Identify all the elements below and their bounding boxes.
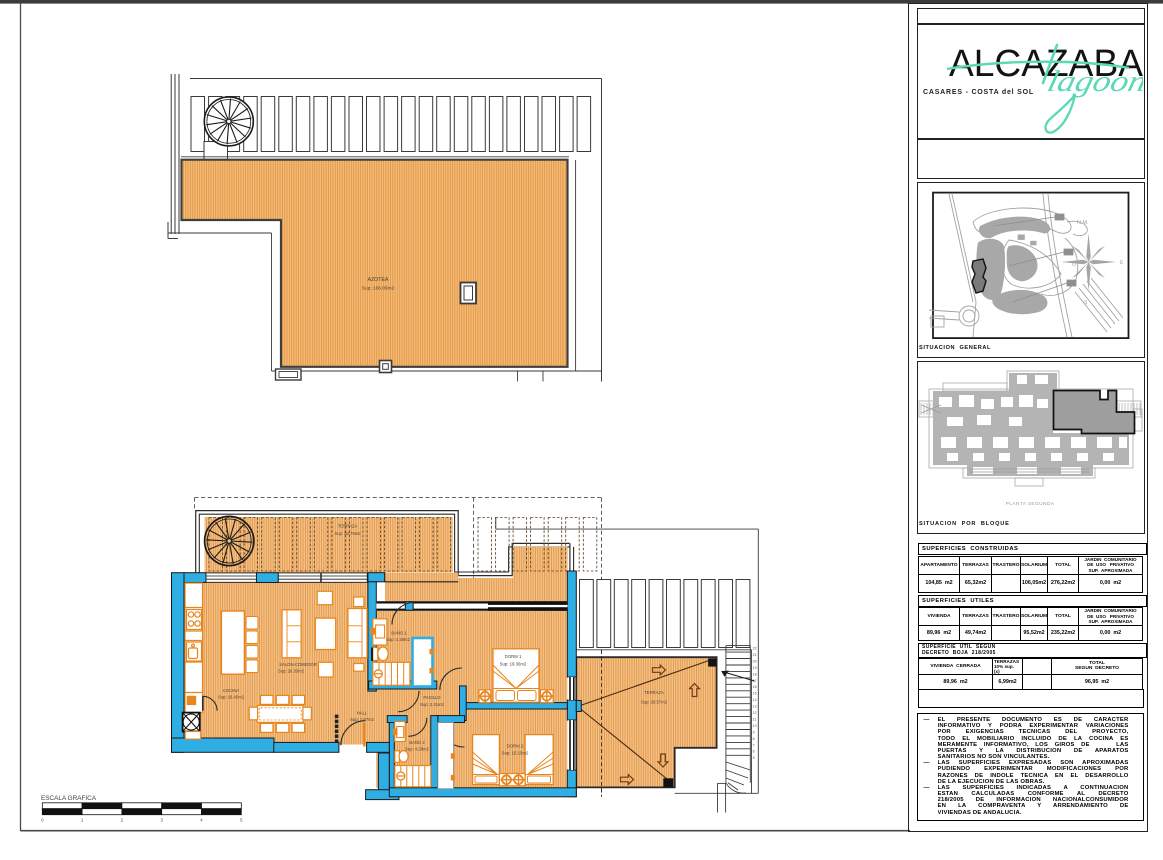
- svg-text:11: 11: [753, 718, 757, 722]
- svg-text:lagoon: lagoon: [1044, 64, 1143, 97]
- svg-text:BAÑO 2: BAÑO 2: [409, 740, 425, 745]
- svg-text:DORM 1: DORM 1: [505, 654, 522, 659]
- svg-text:2: 2: [121, 818, 124, 823]
- svg-text:PASILLO: PASILLO: [423, 695, 441, 700]
- svg-text:Sup: 26.33m2: Sup: 26.33m2: [278, 669, 305, 674]
- svg-text:Sup: 33.79m2: Sup: 33.79m2: [334, 531, 361, 536]
- svg-text:Sup: 19.36m2: Sup: 19.36m2: [500, 662, 527, 667]
- svg-text:0: 0: [41, 818, 44, 823]
- svg-text:5: 5: [753, 756, 755, 760]
- svg-text:5: 5: [240, 818, 243, 823]
- svg-text:TERRAZA: TERRAZA: [644, 690, 664, 695]
- svg-text:PLANTA SEGUNDA: PLANTA SEGUNDA: [1005, 501, 1054, 507]
- svg-text:N.M.: N.M.: [1077, 220, 1089, 226]
- svg-text:Sup: 16.42m2: Sup: 16.42m2: [218, 695, 245, 700]
- svg-text:BAÑO 1: BAÑO 1: [391, 631, 407, 636]
- svg-text:Sup: 2.31m2: Sup: 2.31m2: [420, 702, 444, 707]
- svg-text:4: 4: [200, 818, 203, 823]
- svg-text:16: 16: [753, 685, 757, 689]
- svg-text:6: 6: [753, 750, 755, 754]
- svg-text:22: 22: [753, 647, 757, 651]
- svg-text:SALON-COMEDOR: SALON-COMEDOR: [279, 662, 316, 667]
- svg-text:20: 20: [753, 659, 757, 663]
- svg-text:15: 15: [753, 692, 757, 696]
- svg-text:10: 10: [753, 724, 757, 728]
- svg-text:13: 13: [753, 705, 757, 709]
- svg-text:9: 9: [753, 730, 755, 734]
- svg-text:ESCALA GRAFICA: ESCALA GRAFICA: [41, 795, 97, 802]
- svg-text:DORM 2: DORM 2: [507, 744, 524, 749]
- svg-text:Sup: 4.28m2: Sup: 4.28m2: [386, 637, 410, 642]
- svg-text:17: 17: [753, 679, 757, 683]
- svg-text:8: 8: [753, 737, 755, 741]
- svg-text:CASARES - COSTA del SOL: CASARES - COSTA del SOL: [923, 89, 1034, 96]
- svg-text:Sup: 15.15m2: Sup: 15.15m2: [502, 751, 529, 756]
- svg-text:21: 21: [753, 653, 757, 657]
- svg-text:18: 18: [753, 672, 757, 676]
- svg-text:7: 7: [753, 743, 755, 747]
- svg-text:COCINA: COCINA: [223, 688, 239, 693]
- svg-text:Sup: 28.57m2: Sup: 28.57m2: [641, 700, 668, 705]
- svg-text:19: 19: [753, 666, 757, 670]
- svg-text:12: 12: [753, 711, 757, 715]
- svg-text:1: 1: [81, 818, 84, 823]
- svg-text:O: O: [1072, 262, 1076, 268]
- svg-text:Sup: 106.05m2: Sup: 106.05m2: [362, 286, 395, 292]
- svg-text:3: 3: [161, 818, 164, 823]
- svg-text:Sup: 4.28m2: Sup: 4.28m2: [405, 747, 429, 752]
- svg-text:HALL: HALL: [357, 711, 368, 716]
- svg-text:TERRAZA: TERRAZA: [338, 524, 358, 529]
- svg-text:AZOTEA: AZOTEA: [368, 277, 389, 283]
- svg-text:14: 14: [753, 698, 757, 702]
